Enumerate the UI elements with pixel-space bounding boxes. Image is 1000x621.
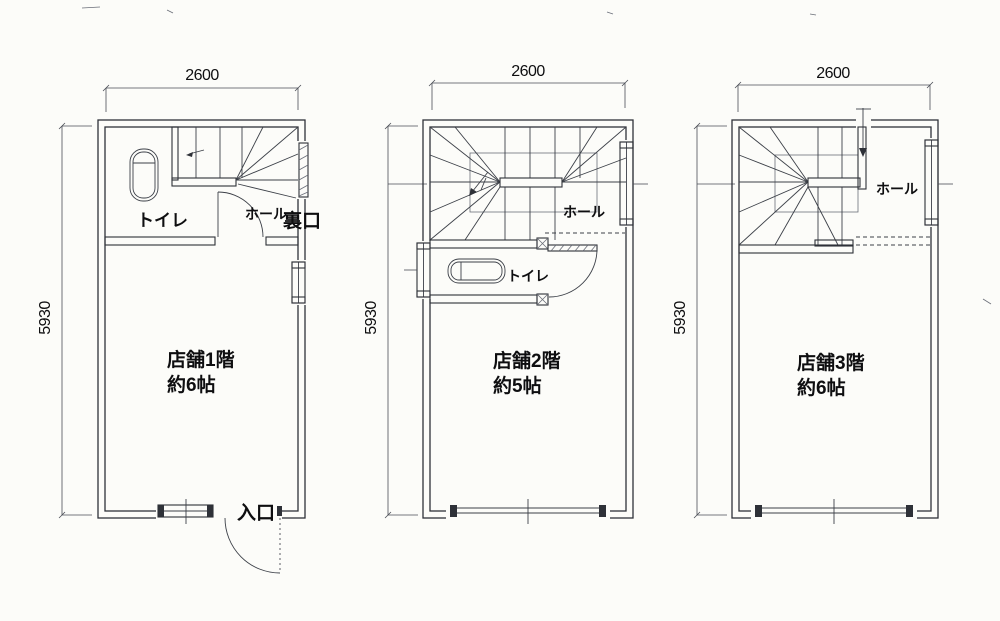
outer-wall-3f [732, 120, 938, 518]
toilet-label-2f: トイレ [507, 268, 549, 284]
toilet-wall-bottom-2f [430, 295, 537, 303]
room-label-2f: 店舗2階 [493, 349, 561, 372]
dim-width-3f: 2600 [735, 65, 933, 112]
dim-height-2f: 5930 [363, 123, 427, 518]
inner-wall-1f [105, 127, 298, 511]
dim-height-label-3f: 5930 [672, 301, 689, 335]
dim-width-2f: 2600 [429, 63, 628, 110]
hall-label-1f: ホール [245, 206, 287, 222]
dim-height-label-1f: 5930 [37, 301, 54, 335]
room-label-1f: 店舗1階 [167, 348, 235, 371]
dim-height-1f: 5930 [37, 123, 92, 518]
dim-width-label-2f: 2600 [511, 63, 545, 80]
scan-artifacts [82, 7, 991, 304]
room-door-2f [548, 245, 597, 297]
hall-label-3f: ホール [876, 181, 918, 197]
room-label-3f: 店舗3階 [797, 351, 865, 374]
dim-width-label-1f: 2600 [185, 67, 219, 84]
dim-width-1f: 2600 [103, 67, 301, 112]
staircase-2f [430, 127, 626, 240]
outer-wall-2f [423, 120, 633, 518]
stair-stringer-1f [172, 178, 236, 186]
stair-divider-1f [172, 127, 178, 180]
hall-label-2f: ホール [563, 204, 605, 220]
partition-hall-1f [105, 237, 215, 245]
staircase-1f [186, 127, 298, 198]
dim-height-3f: 5930 [672, 123, 735, 518]
partition-stub-1f [266, 237, 298, 245]
entrance-label-1f: 入口 [237, 502, 275, 524]
floor-plan-2f: 2600 5930 [363, 63, 648, 524]
floor-plan-1f: 2600 5930 [37, 67, 321, 573]
staircase-3f [739, 108, 871, 246]
toilet-label-1f: トイレ [137, 211, 188, 230]
floor-plan-3f: 2600 5930 [672, 65, 953, 524]
entrance-door-1f [225, 518, 280, 573]
dim-width-label-3f: 2600 [816, 65, 850, 82]
toilet-fixture-1f [130, 149, 158, 201]
room-size-label-3f: 約6帖 [797, 376, 846, 399]
dim-height-label-2f: 5930 [363, 301, 380, 335]
toilet-wall-top-2f [430, 240, 537, 248]
room-size-label-1f: 約6帖 [167, 373, 216, 396]
room-size-label-2f: 約5帖 [493, 374, 542, 397]
inner-wall-2f [430, 127, 626, 511]
back-door-label-1f: 裏口 [282, 209, 321, 232]
floorplan-canvas: 2600 5930 [0, 0, 1000, 621]
toilet-fixture-2f [448, 259, 505, 283]
floorplan-drawing: 2600 5930 [0, 0, 1000, 621]
